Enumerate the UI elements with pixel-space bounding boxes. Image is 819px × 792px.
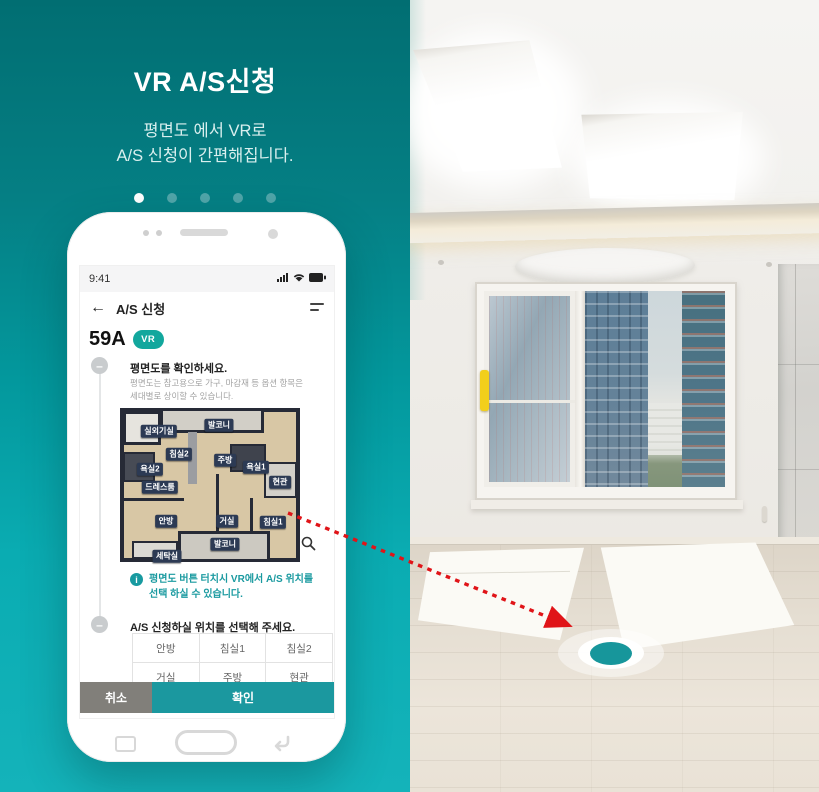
crown-molding: [410, 203, 819, 243]
page-title: VR A/S신청: [0, 60, 410, 99]
room-tag[interactable]: 욕실2: [137, 463, 163, 476]
room-tag[interactable]: 욕실1: [243, 461, 269, 474]
speaker-grille: [180, 229, 228, 236]
cancel-button[interactable]: 취소: [80, 682, 152, 713]
room-photo: [410, 0, 819, 792]
info-text-line: 평면도 버튼 터치시 VR에서 A/S 위치를: [149, 572, 313, 587]
step-timeline: [99, 373, 101, 618]
room-tag[interactable]: 현관: [269, 476, 291, 489]
window-view: [585, 291, 725, 487]
info-icon: i: [130, 573, 143, 586]
menu-icon[interactable]: [310, 303, 324, 311]
table-row: 안방 침실1 침실2: [133, 634, 333, 663]
floor-plan[interactable]: 실외기실 발코니 침실2 주방 욕실2 욕실1 현관 드레스룸 안방 거실 침실…: [120, 408, 300, 562]
wifi-icon: [293, 273, 305, 282]
battery-icon: [309, 273, 326, 282]
window-sash-closed: [484, 291, 575, 487]
building-tower: [682, 291, 725, 487]
window-handle: [480, 370, 489, 411]
lowrise-buildings: [648, 403, 682, 455]
recents-icon[interactable]: [115, 736, 136, 752]
wall-outlet: [762, 506, 767, 522]
vr-location-target[interactable]: [590, 642, 632, 665]
building-tower: [585, 291, 648, 487]
app-bar-title: A/S 신청: [116, 299, 165, 318]
phone-mockup: 9:41 ← A/S 신청 59A VR –: [67, 212, 346, 762]
confirm-button[interactable]: 확인: [152, 682, 334, 713]
front-camera-icon: [268, 229, 278, 239]
vr-badge[interactable]: VR: [133, 330, 164, 349]
plan-wall: [250, 498, 253, 534]
step1-description: 평면도는 참고용으로 가구, 마감재 등 옵션 항목은 세대별로 상이할 수 있…: [130, 377, 303, 403]
window-mullion: [575, 291, 585, 487]
camera-dot-icon: [156, 230, 162, 236]
pagination: [0, 193, 410, 203]
room-tag[interactable]: 드레스룸: [142, 481, 178, 494]
ceiling-light: [578, 108, 748, 204]
back-key-icon[interactable]: [271, 734, 293, 754]
page-subtitle: 평면도 에서 VR로 A/S 신청이 간편해집니다.: [0, 119, 410, 169]
location-cell[interactable]: 침실1: [199, 634, 266, 663]
back-icon[interactable]: ←: [90, 299, 106, 317]
room-tag[interactable]: 거실: [216, 515, 238, 528]
unit-row: 59A VR: [89, 328, 164, 351]
room-tag[interactable]: 실외기실: [141, 425, 177, 438]
pagination-dot-active[interactable]: [134, 193, 144, 203]
home-button[interactable]: [175, 730, 237, 755]
window-sash-rail: [484, 400, 575, 403]
ceiling-vent-cover: [515, 247, 695, 285]
location-cell[interactable]: 안방: [133, 634, 200, 663]
room-tag[interactable]: 침실2: [166, 448, 192, 461]
room-tag[interactable]: 발코니: [204, 419, 233, 432]
room-tag[interactable]: 발코니: [210, 538, 239, 551]
location-cell[interactable]: 침실2: [266, 634, 333, 663]
marble-wall: [778, 264, 819, 546]
pagination-dot[interactable]: [233, 193, 243, 203]
pagination-dot[interactable]: [266, 193, 276, 203]
subtitle-line: A/S 신청이 간편해집니다.: [0, 144, 410, 169]
phone-nav-bar: [67, 728, 346, 762]
pagination-dot[interactable]: [167, 193, 177, 203]
room-tag[interactable]: 안방: [155, 515, 177, 528]
status-bar: 9:41: [80, 266, 334, 292]
intro-panel: VR A/S신청 평면도 에서 VR로 A/S 신청이 간편해집니다. 9:41: [0, 0, 410, 792]
unit-type-label: 59A: [89, 328, 126, 351]
step1-collapse-icon[interactable]: –: [91, 357, 108, 374]
camera-dot-icon: [143, 230, 149, 236]
room-tag[interactable]: 침실1: [260, 516, 286, 529]
room-tag[interactable]: 주방: [214, 454, 236, 467]
subtitle-line: 평면도 에서 VR로: [0, 119, 410, 144]
plan-wall: [124, 498, 184, 501]
signal-icon: [277, 273, 289, 282]
room-tag[interactable]: 세탁실: [152, 550, 181, 563]
wall-sensor: [438, 260, 444, 265]
wall-sensor: [766, 262, 772, 267]
pagination-dot[interactable]: [200, 193, 210, 203]
window: [475, 282, 737, 500]
baseboard: [410, 537, 819, 545]
window-sill: [471, 500, 743, 509]
app-bar: ← A/S 신청: [80, 292, 334, 324]
info-note: i 평면도 버튼 터치시 VR에서 A/S 위치를 선택 하실 수 있습니다.: [130, 572, 313, 602]
magnifier-icon[interactable]: [301, 536, 316, 551]
step2-collapse-icon[interactable]: –: [91, 616, 108, 633]
sky-and-greenery: [648, 291, 682, 487]
action-bar: 취소 확인: [80, 682, 334, 713]
step1-title: 평면도를 확인하세요.: [130, 360, 227, 376]
clock-text: 9:41: [89, 273, 110, 285]
vr-as-onboarding-screen: VR A/S신청 평면도 에서 VR로 A/S 신청이 간편해집니다. 9:41: [0, 0, 819, 792]
app-screen: 9:41 ← A/S 신청 59A VR –: [80, 266, 334, 718]
info-text-line: 선택 하실 수 있습니다.: [149, 587, 313, 602]
